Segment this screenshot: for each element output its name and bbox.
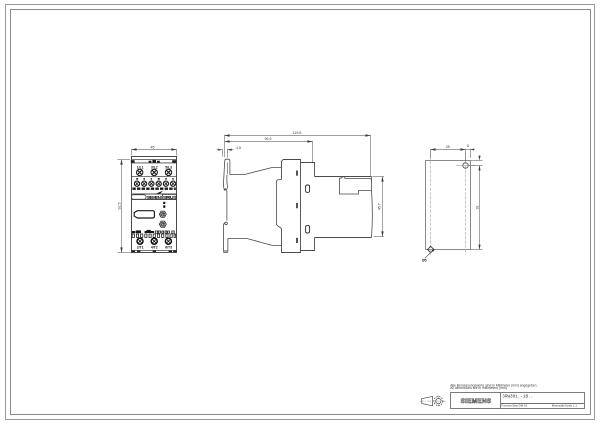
svg-text:5: 5 (467, 144, 469, 148)
svg-text:35: 35 (446, 145, 450, 149)
svg-text:4.5: 4.5 (236, 146, 241, 150)
svg-text:92.5: 92.5 (118, 203, 122, 210)
svg-text:Fortschr/Stat DM A2: Fortschr/Stat DM A2 (501, 404, 527, 408)
svg-text:Ø5: Ø5 (422, 258, 427, 262)
svg-text:5/L3: 5/L3 (165, 165, 172, 169)
svg-text:45.7: 45.7 (378, 203, 382, 210)
svg-text:3/L2: 3/L2 (151, 165, 158, 169)
svg-text:119.8: 119.8 (293, 131, 302, 135)
svg-text:92: 92 (475, 206, 479, 210)
svg-text:45: 45 (151, 145, 155, 149)
svg-text:96.5: 96.5 (265, 137, 272, 141)
svg-text:Massstab/Scale 1:1: Massstab/Scale 1:1 (552, 404, 578, 408)
svg-text:2/T1: 2/T1 (137, 246, 144, 250)
svg-text:All dimensions are in millimet: All dimensions are in millimeters (mm) (450, 386, 506, 390)
svg-text:SIEMENS: SIEMENS (461, 398, 492, 405)
svg-text:6/T3: 6/T3 (165, 246, 172, 250)
svg-text:3RW301.-1B..: 3RW301.-1B.. (502, 394, 533, 399)
svg-text:1/L1: 1/L1 (137, 165, 144, 169)
svg-text:4/T2: 4/T2 (151, 246, 158, 250)
